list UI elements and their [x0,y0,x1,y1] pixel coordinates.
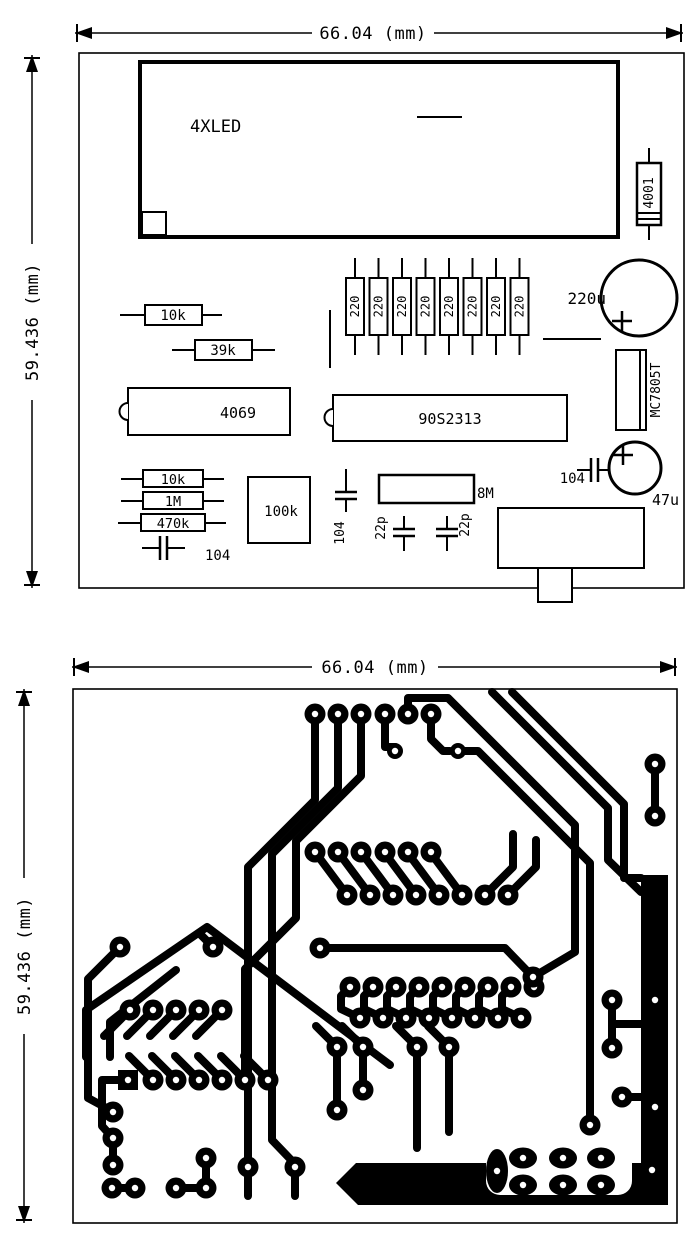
resistor-10k-lower: 10k [121,470,224,488]
plus-mark [613,445,633,465]
diode-label: 4001 [642,177,657,208]
pad [419,1008,440,1029]
copper-traces [86,692,655,1196]
pad [488,1008,509,1029]
pad [612,1087,633,1108]
cap-22p-1-label: 22p [374,516,389,540]
pad [439,1037,460,1058]
cap-104-left-label: 104 [205,548,230,564]
resistor-220-label: 220 [489,296,503,318]
pad [386,977,407,998]
cap-104-left: 104 [142,536,230,564]
resistor-220-8: 220 [511,258,529,355]
pad [351,842,372,863]
resistor-470k-label: 470k [157,516,190,532]
pad [120,1000,141,1021]
cap-104-right: 104 [560,458,609,487]
regulator-label: MC7805T [649,362,664,417]
pad [258,1070,279,1091]
ic-notch [325,409,334,426]
resistor-220-3: 220 [393,258,411,355]
pad [501,977,522,998]
pad [498,885,519,906]
pad [602,990,623,1011]
pad [125,1178,146,1199]
ic-notch [120,403,129,420]
pad [375,704,396,725]
cap-22p-2: 22p [436,513,473,551]
pad [143,1070,164,1091]
top-height-dimension: 59.436 (mm) [23,55,43,588]
resistor-470k: 470k [118,514,226,532]
pad [353,1037,374,1058]
pad [285,1157,306,1178]
resistor-39k: 39k [172,340,275,360]
resistor-220-label: 220 [372,296,386,318]
top-width-dimension: 66.04 (mm) [75,24,683,44]
pad [407,1037,428,1058]
resistor-220-4: 220 [417,258,435,355]
pad [102,1178,123,1199]
pad [110,937,131,958]
resistor-10k-upper: 10k [120,305,222,325]
pad [645,754,666,775]
ic-4069: 4069 [120,388,291,435]
cap-104-mid-label: 104 [333,521,348,545]
pad [203,937,224,958]
top-height-dimension-label: 59.436 (mm) [23,263,43,381]
pad [340,977,361,998]
pad [238,1157,259,1178]
pad [409,977,430,998]
resistor-220-label: 220 [442,296,456,318]
bottom-width-dimension-label: 66.04 (mm) [321,658,428,678]
pad [189,1000,210,1021]
bottom-height-dimension-label: 59.436 (mm) [15,897,35,1015]
ic-90s2313-label: 90S2313 [418,410,481,428]
pcb-drawing-page: 66.04 (mm) 59.436 (mm) 4XLED 4001 220u 2… [0,0,700,1238]
pad [305,842,326,863]
pad [353,1080,374,1101]
resistor-1m-label: 1M [165,494,181,510]
pad [103,1102,124,1123]
diode-4001: 4001 [637,148,661,240]
pad [645,806,666,827]
pad [351,704,372,725]
resistor-220-5: 220 [440,258,458,355]
pad [383,885,404,906]
pad [196,1178,217,1199]
pad [305,704,326,725]
led-display-label: 4XLED [190,117,241,137]
resistor-220-6: 220 [464,258,482,355]
square-pad [118,1070,138,1090]
resistor-10k-lower-label: 10k [161,472,185,488]
ic-90s2313: 90S2313 [325,395,568,441]
resistor-220-label: 220 [395,296,409,318]
bottom-height-dimension: 59.436 (mm) [15,689,35,1223]
cap-47u: 47u [609,442,679,509]
cap-22p-2-label: 22p [458,513,473,537]
resistor-220-label: 220 [466,296,480,318]
pad [328,842,349,863]
pad [455,977,476,998]
crystal-8m: 8M [379,475,494,503]
resistor-39k-label: 39k [210,343,236,359]
led-display-module: 4XLED [140,62,618,237]
pad [523,967,544,988]
pad [328,704,349,725]
trimmer-label: 100k [264,504,298,520]
resistor-220-label: 220 [348,296,362,318]
pad [212,1000,233,1021]
pad [398,842,419,863]
pad [189,1070,210,1091]
pad [363,977,384,998]
pad [212,1070,233,1091]
cap-47u-label: 47u [652,491,679,509]
resistor-220-7: 220 [487,258,505,355]
pad [398,704,419,725]
cap-22p-1: 22p [374,516,415,551]
pad [429,885,450,906]
pad [103,1128,124,1149]
pad [360,885,381,906]
pad [452,885,473,906]
pad [580,1115,601,1136]
pad [396,1008,417,1029]
pad [478,977,499,998]
pad [103,1155,124,1176]
pad [327,1100,348,1121]
pad [406,885,427,906]
pad [375,842,396,863]
cap-220u-label: 220u [567,289,606,308]
regulator-mc7805t: MC7805T [616,350,664,430]
resistor-220-label: 220 [419,296,433,318]
top-width-dimension-label: 66.04 (mm) [319,24,426,44]
component-placement-view: 66.04 (mm) 59.436 (mm) 4XLED 4001 220u 2… [0,0,700,620]
cap-104-mid: 104 [333,469,357,545]
pad [373,1008,394,1029]
pad [387,743,403,759]
crystal-label: 8M [477,486,494,502]
resistor-220-1: 220 [346,258,364,355]
cap-220u: 220u [567,260,677,336]
pad [465,1008,486,1029]
pad [196,1148,217,1169]
resistor-10k-upper-label: 10k [160,308,186,324]
resistor-1m: 1M [121,492,224,510]
cap-104-right-label: 104 [560,471,585,487]
pad [421,704,442,725]
resistor-220-2: 220 [370,258,388,355]
pad [350,1008,371,1029]
pad [432,977,453,998]
pad [511,1008,532,1029]
pad [166,1178,187,1199]
pad [602,1038,623,1059]
pad [337,885,358,906]
pad [450,743,466,759]
trimmer-100k: 100k [248,477,310,543]
pad [421,842,442,863]
pad [442,1008,463,1029]
resistor-220-label: 220 [513,296,527,318]
pad [166,1000,187,1021]
copper-trace-view: 66.04 (mm) 59.436 (mm) [0,620,700,1238]
pad [310,938,331,959]
bottom-width-dimension: 66.04 (mm) [72,658,677,678]
pad [143,1000,164,1021]
pad [475,885,496,906]
pad [235,1070,256,1091]
ic-4069-label: 4069 [220,404,256,422]
pad [166,1070,187,1091]
resistor-array-220: 220220220220220220220220 [346,258,529,355]
pad [327,1037,348,1058]
